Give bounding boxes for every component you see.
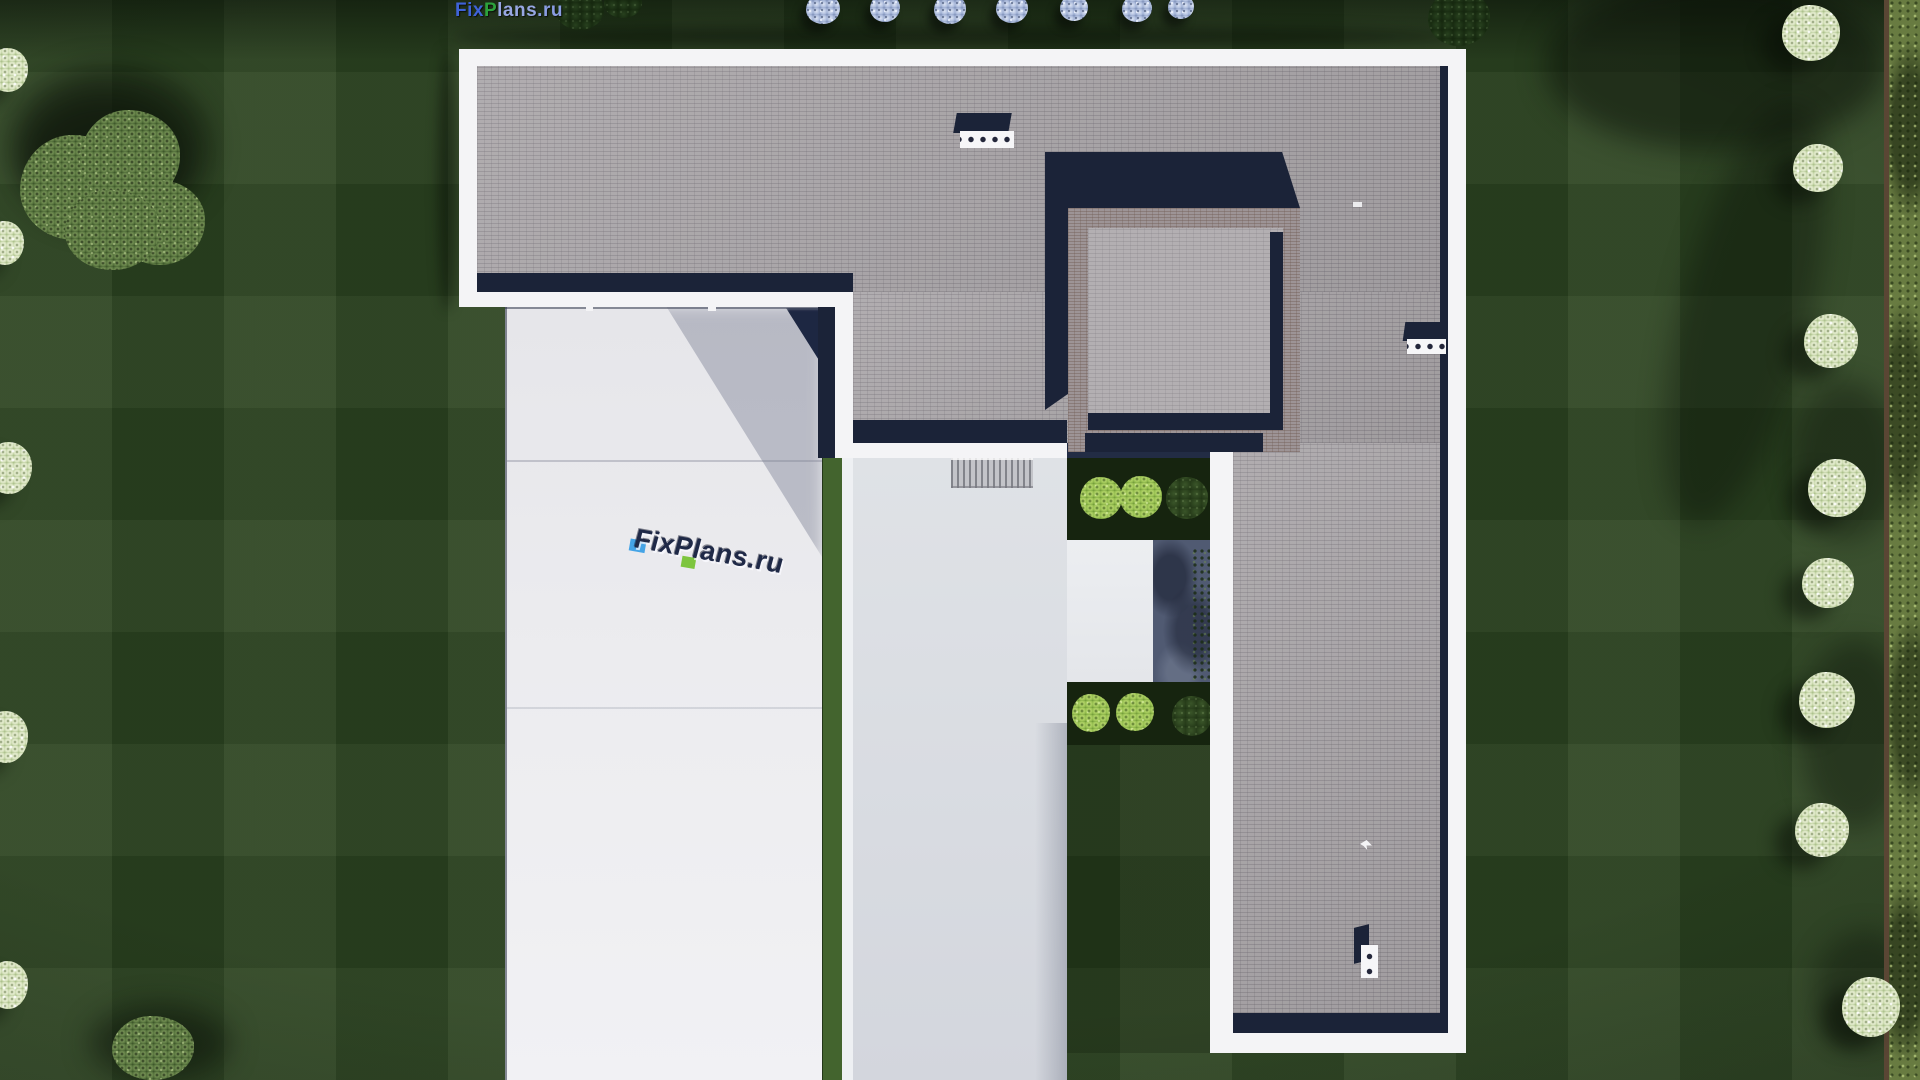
bush-frosted <box>0 711 28 763</box>
vent-front-face <box>1407 339 1446 354</box>
vent-top-face <box>953 113 1012 133</box>
walkway <box>1067 540 1153 682</box>
edge-shadow <box>1035 723 1067 1080</box>
pavement-seam <box>505 707 822 709</box>
drain-grate <box>951 458 1033 488</box>
water-plants <box>1192 548 1210 683</box>
vent-front-face <box>960 131 1014 148</box>
courtyard-shadow-top <box>1045 152 1300 208</box>
vent-front-face <box>1361 945 1378 978</box>
tree <box>112 1016 194 1080</box>
bush <box>1072 694 1110 732</box>
tree <box>556 0 604 30</box>
lawn-strip <box>822 458 844 1080</box>
courtyard-outer-shadow <box>1085 433 1263 452</box>
bush <box>1116 693 1154 731</box>
roof-tiles-right-wing <box>1233 443 1448 1013</box>
tree <box>604 0 642 18</box>
parapet-shadow <box>1233 1013 1448 1033</box>
tree-cluster <box>20 80 230 260</box>
logo-segment: Fix <box>455 0 484 21</box>
driveway-secondary <box>842 443 1067 1080</box>
site-aerial-view: FixPlans.ru FixPlans.ru <box>0 0 1920 1080</box>
site-logo: FixPlans.ru <box>455 0 563 22</box>
tree <box>934 0 966 24</box>
roof-vent <box>1404 322 1448 354</box>
parapet-shadow <box>1440 66 1448 1013</box>
lawn-shade <box>1067 745 1210 1053</box>
tree <box>806 0 840 24</box>
tree <box>1060 0 1088 21</box>
driveway-main <box>505 307 822 1080</box>
bush <box>1080 477 1122 519</box>
logo-segment: lans <box>497 0 537 21</box>
tree <box>1428 0 1490 46</box>
hedge-strip <box>1884 0 1920 1080</box>
logo-segment: P <box>484 0 497 21</box>
parapet-shadow <box>477 273 853 292</box>
tree <box>1122 0 1152 22</box>
tree-frosted <box>1842 977 1900 1037</box>
tree <box>1168 0 1194 19</box>
roof-tiles-top-wing <box>477 66 1448 292</box>
building-shadow <box>450 26 1460 48</box>
garden-strip <box>1067 458 1210 1053</box>
tree-frosted <box>1808 459 1866 517</box>
tree <box>65 190 160 270</box>
pavement-seam <box>505 460 822 462</box>
courtyard-inner-shadow-right <box>1270 232 1283 430</box>
tree <box>996 0 1028 23</box>
bush-frosted <box>0 442 32 494</box>
tree-frosted <box>1802 558 1854 608</box>
bush-dark <box>1172 696 1212 736</box>
tree-frosted <box>1804 314 1858 368</box>
logo-segment: .ru <box>537 0 563 21</box>
tree <box>870 0 900 22</box>
tree-frosted <box>1795 803 1849 857</box>
roof-vent <box>955 113 1015 149</box>
roof-vent <box>1354 926 1380 978</box>
courtyard-inner-shadow-bottom <box>1088 413 1283 430</box>
driveway-edge-line <box>505 307 507 1080</box>
curb <box>842 443 853 1080</box>
building-shadow <box>438 49 456 311</box>
bush-dark <box>1166 477 1208 519</box>
bush <box>1120 476 1162 518</box>
parapet-shadow <box>853 420 1067 443</box>
courtyard-shadow-left <box>1045 208 1068 410</box>
roof-detail-mark <box>1353 202 1362 207</box>
bush-frosted <box>0 961 28 1009</box>
tree-frosted <box>1782 5 1840 61</box>
tree-frosted <box>1793 144 1843 192</box>
wall-shadow <box>818 307 835 458</box>
tree-frosted <box>1799 672 1855 728</box>
courtyard-floor <box>1088 228 1283 430</box>
